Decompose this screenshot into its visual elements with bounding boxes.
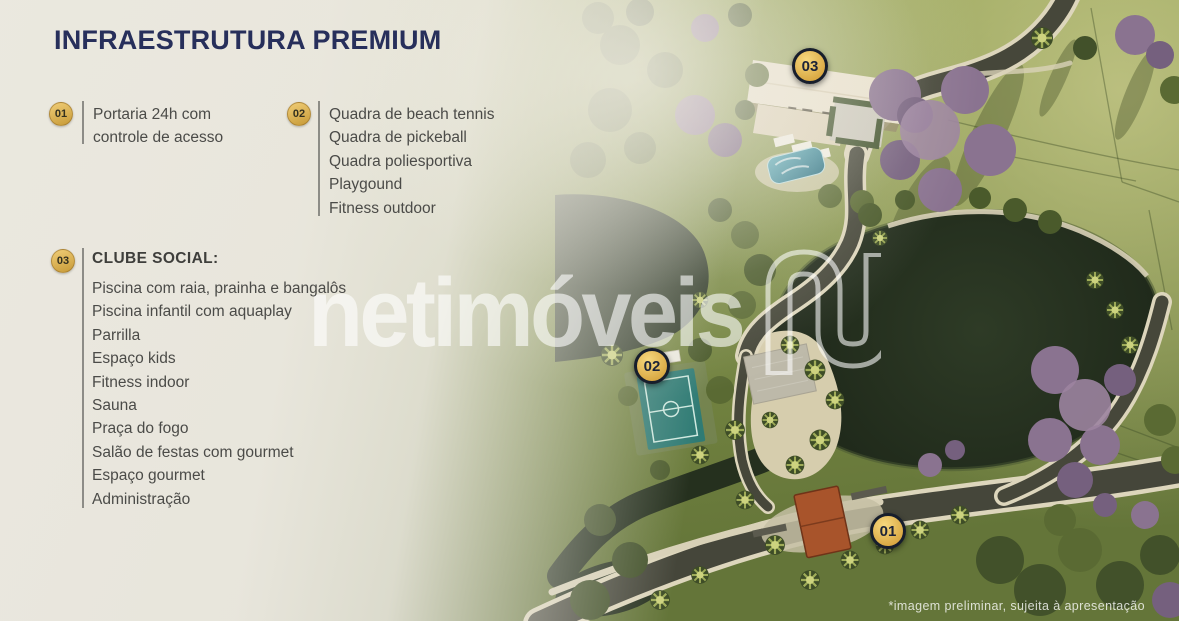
legend-item: Fitness indoor	[92, 371, 346, 394]
legend-heading-03: CLUBE SOCIAL:	[92, 250, 346, 268]
disclaimer-note: *imagem preliminar, sujeita à apresentaç…	[888, 599, 1145, 613]
legend-01-line1: Portaria 24h com	[93, 103, 223, 126]
legend-badge-01: 01	[49, 102, 73, 126]
page-title: INFRAESTRUTURA PREMIUM	[54, 25, 441, 56]
legend-item: Praça do fogo	[92, 417, 346, 440]
map-marker-02: 02	[634, 348, 670, 384]
legend-divider-01	[82, 101, 84, 144]
legend-item: Quadra de pickeball	[329, 126, 494, 149]
legend-item: Piscina com raia, prainha e bangalôs	[92, 277, 346, 300]
legend-list-02: Quadra de beach tennis Quadra de pickeba…	[329, 103, 494, 220]
legend-item: Quadra de beach tennis	[329, 103, 494, 126]
legend-item: Playgound	[329, 173, 494, 196]
netimoveis-watermark: netimóveis	[308, 264, 742, 361]
legend-item: Fitness outdoor	[329, 197, 494, 220]
legend-list-03: Piscina com raia, prainha e bangalôs Pis…	[92, 277, 346, 511]
legend-item: Administração	[92, 488, 346, 511]
map-marker-01: 01	[870, 513, 906, 549]
legend-badge-03: 03	[51, 249, 75, 273]
legend-divider-03	[82, 248, 84, 508]
legend-item: Espaço gourmet	[92, 464, 346, 487]
map-marker-03: 03	[792, 48, 828, 84]
legend-item: Piscina infantil com aquaplay	[92, 300, 346, 323]
legend-item: Quadra poliesportiva	[329, 150, 494, 173]
legend-badge-02: 02	[287, 102, 311, 126]
legend-01-line2: controle de acesso	[93, 126, 223, 149]
legend-item: Sauna	[92, 394, 346, 417]
legend-divider-02	[318, 101, 320, 216]
infographic-canvas: netimóveis INFRAESTRUTURA PREMIUM 01 Por…	[0, 0, 1179, 621]
legend-item: Salão de festas com gourmet	[92, 441, 346, 464]
legend-item: Parrilla	[92, 324, 346, 347]
legend-item: Espaço kids	[92, 347, 346, 370]
legend-text-01: Portaria 24h com controle de acesso	[93, 103, 223, 149]
legend-block-03: CLUBE SOCIAL: Piscina com raia, prainha …	[92, 250, 346, 511]
netimoveis-n-logo-icon	[763, 247, 881, 381]
